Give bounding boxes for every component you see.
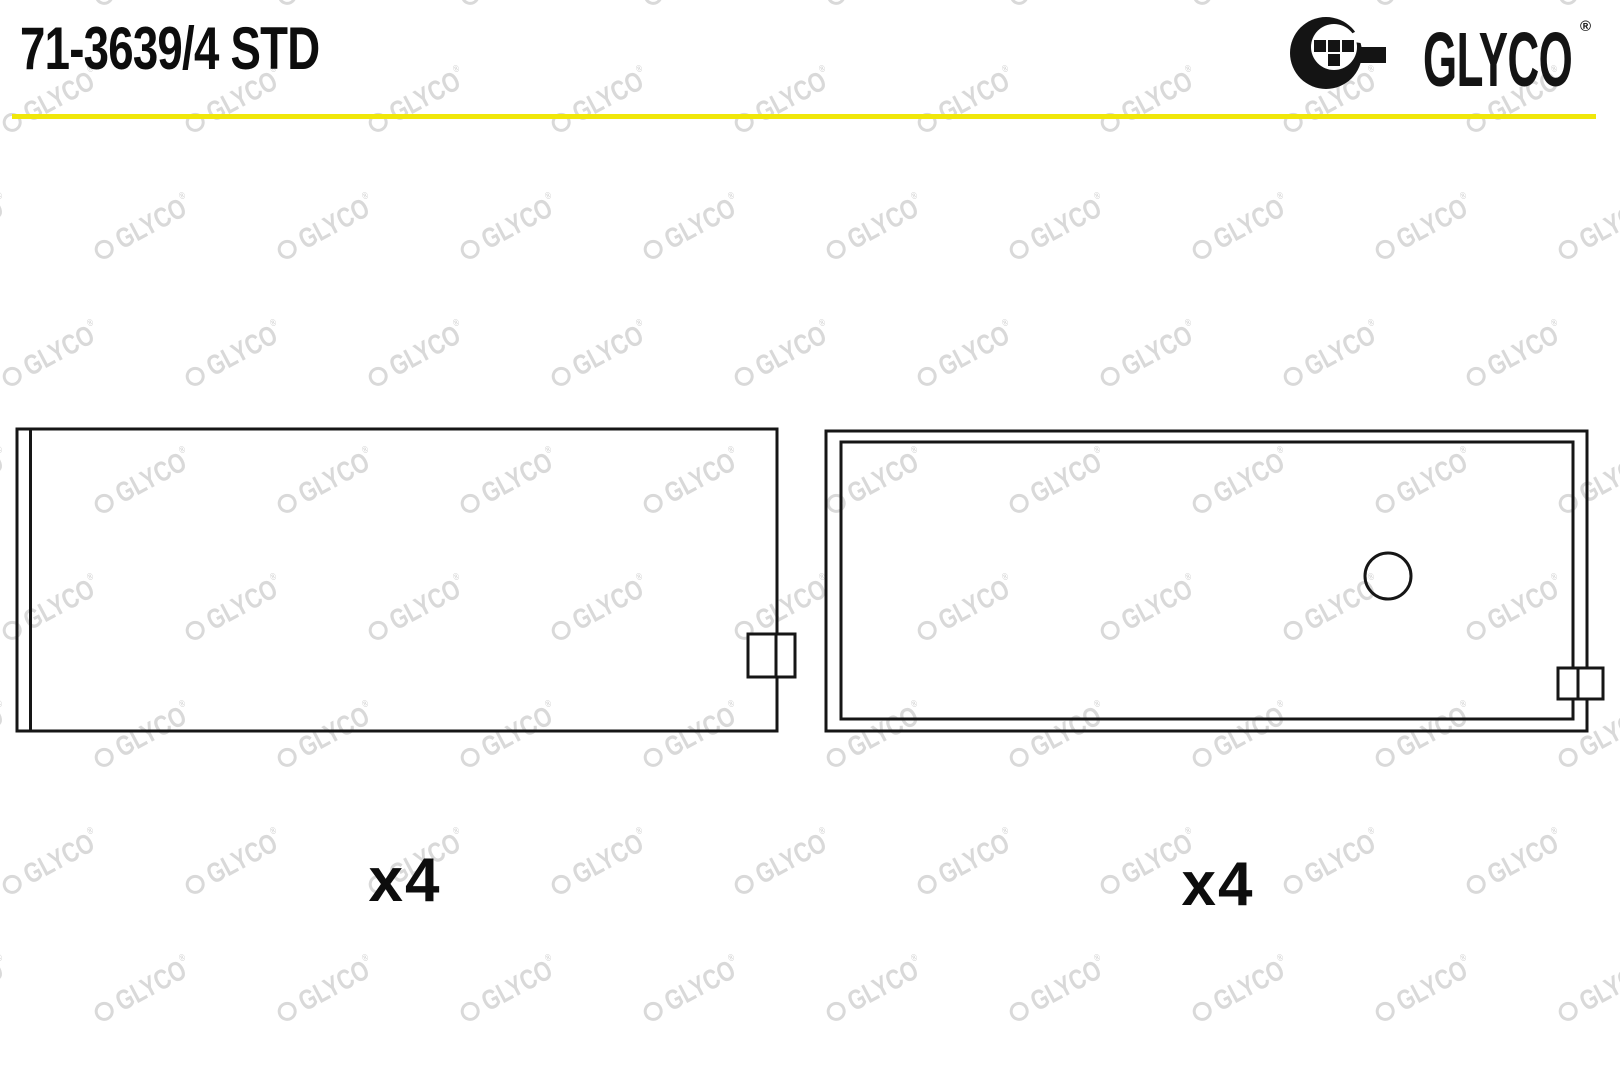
right-bearing-inner-outline [841,442,1573,719]
header-rule [12,114,1596,119]
right-bearing-drawing [826,431,1603,731]
right-bearing-locking-lug [1558,668,1603,699]
technical-drawing-canvas [0,0,1620,1080]
glyco-logo-text: GLYCO [1423,22,1572,99]
page: GLYCO®GLYCO®GLYCO®GLYCO®GLYCO®GLYCO®GLYC… [0,0,1620,1080]
left-bearing-locking-lug [748,634,795,677]
left-bearing-outline [17,429,777,731]
left-quantity-label: x4 [335,850,475,912]
part-number: 71-3639/4 STD [20,19,319,79]
glyco-logo: GLYCO ® [1288,14,1608,94]
glyco-logo-icon [1288,14,1388,92]
oil-hole [1365,553,1411,599]
left-bearing-drawing [17,429,795,731]
right-bearing-outer-outline [826,431,1587,731]
registered-trademark: ® [1580,18,1591,35]
right-quantity-label: x4 [1148,854,1288,916]
